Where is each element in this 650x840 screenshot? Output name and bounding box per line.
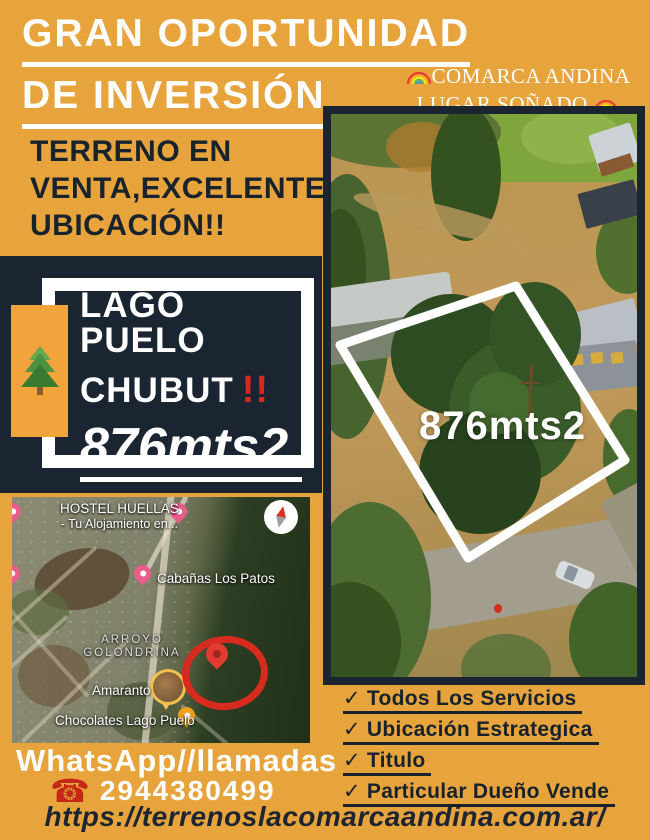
intro-line1: TERRENO EN <box>30 133 325 170</box>
check-icon: ✓ <box>343 717 361 741</box>
brand-name-line1: COMARCA ANDINA <box>432 64 631 88</box>
map-label-arroyo: ARROYO GOLONDRINA <box>74 634 190 660</box>
feature-label: Ubicación Estrategica <box>367 718 593 741</box>
aerial-photo: 876mts2 <box>331 114 637 677</box>
card-area-value: 876mts2 <box>80 421 302 482</box>
main-title-line1: GRAN OPORTUNIDAD <box>22 14 470 67</box>
check-icon: ✓ <box>343 686 361 710</box>
aerial-photo-frame: 876mts2 <box>323 106 645 685</box>
card-location-line2: CHUBUT!! <box>80 371 314 409</box>
map-label-hostel: HOSTEL HUELLAS - Tu Alojamiento en... <box>60 501 179 531</box>
location-card: LAGO PUELO CHUBUT!! 876mts2 <box>0 256 322 493</box>
features-list: ✓Todos Los Servicios ✓Ubicación Estrateg… <box>343 687 615 811</box>
feature-label: Particular Dueño Vende <box>367 780 609 803</box>
flyer-poster: GRAN OPORTUNIDAD DE INVERSIÓN COMARCA AN… <box>0 0 650 840</box>
exclamation-icon: !! <box>242 369 269 411</box>
map-label-cabanas: Cabañas Los Patos <box>157 571 275 587</box>
intro-text: TERRENO EN VENTA,EXCELENTE UBICACIÓN!! <box>30 133 325 244</box>
photo-area-label: 876mts2 <box>419 404 586 449</box>
website-url: https://terrenoslacomarcaandina.com.ar/ <box>0 801 650 833</box>
place-photo-icon <box>150 669 186 705</box>
check-icon: ✓ <box>343 748 361 772</box>
intro-line3: UBICACIÓN!! <box>30 207 325 244</box>
compass-icon <box>264 500 298 534</box>
feature-item: ✓Titulo <box>343 749 615 776</box>
card-text: LAGO PUELO CHUBUT!! 876mts2 <box>80 288 314 482</box>
rainbow-icon <box>406 69 432 85</box>
main-title-line2: DE INVERSIÓN <box>22 76 326 129</box>
plot-outline <box>331 114 637 677</box>
evergreen-tree-icon <box>19 345 61 397</box>
feature-item: ✓Ubicación Estrategica <box>343 718 615 745</box>
map-thumbnail: HOSTEL HUELLAS - Tu Alojamiento en... Ca… <box>12 497 310 743</box>
feature-item: ✓Todos Los Servicios <box>343 687 615 714</box>
intro-line2: VENTA,EXCELENTE <box>30 170 325 207</box>
tree-badge <box>11 305 68 437</box>
map-label-chocolates: Chocolates Lago Puelo <box>55 713 195 729</box>
brand-line1: COMARCA ANDINA <box>392 62 644 90</box>
map-label-amaranto: Amaranto <box>92 683 151 699</box>
feature-label: Todos Los Servicios <box>367 687 577 710</box>
feature-label: Titulo <box>367 749 426 772</box>
card-location-line1: LAGO PUELO <box>80 288 314 358</box>
check-icon: ✓ <box>343 779 361 803</box>
